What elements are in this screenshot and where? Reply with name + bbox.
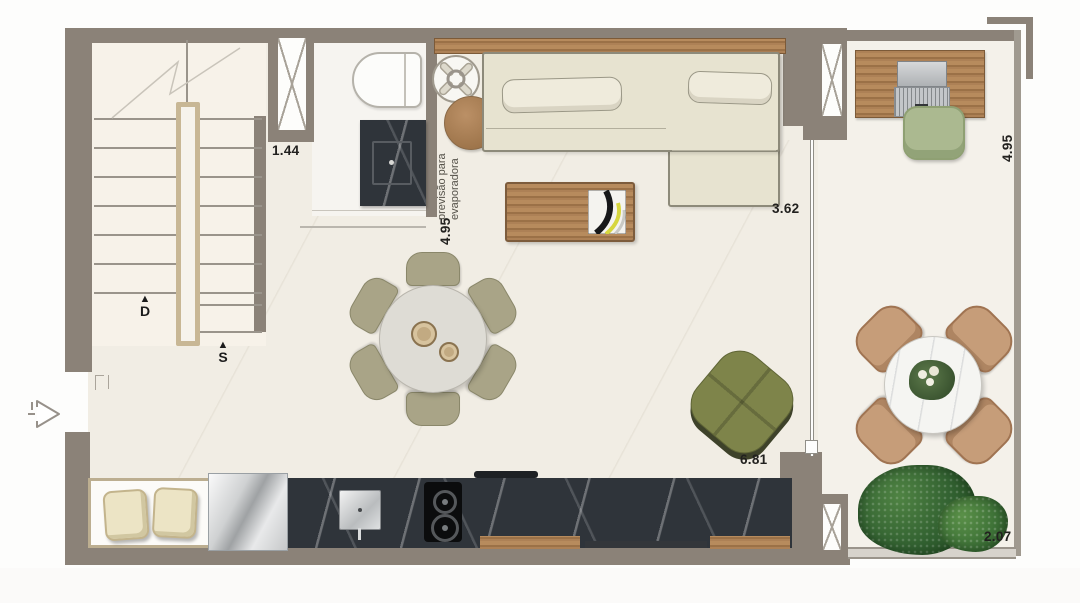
stool (152, 487, 199, 539)
vanity-faucet (389, 160, 394, 165)
kitchen-cabinet (710, 536, 790, 549)
stair-break-line (100, 42, 250, 122)
sofa-pillow (687, 71, 772, 106)
cabinet-handle (474, 471, 538, 478)
refrigerator (208, 473, 288, 551)
burner (431, 514, 459, 542)
sofa-pillow (502, 76, 623, 113)
burner (433, 490, 457, 514)
bowl (439, 342, 459, 362)
stair-down-label: ▲ D (132, 294, 158, 319)
dimension-label-kitchen: 6.81 (740, 452, 767, 467)
duct-shaft-x-icon (276, 36, 308, 132)
balcony-right-railing (1014, 30, 1021, 556)
bowl (411, 321, 437, 347)
bottom-wall (65, 548, 850, 565)
sink-drain (358, 508, 362, 512)
corner-bracket-v (1026, 17, 1033, 79)
flower-bloom (918, 370, 927, 379)
desk-chair (903, 106, 965, 160)
left-wall-upper (65, 28, 92, 372)
left-wall-lower (65, 432, 90, 565)
dining-chair (406, 252, 460, 286)
flower-bloom (926, 378, 934, 386)
laptop-screen (897, 61, 947, 87)
sofa-seam (486, 128, 666, 129)
flower-bloom (929, 366, 939, 376)
entry-arrow-icon (24, 392, 66, 436)
dimension-label-balcony-width: 2.07 (984, 529, 1011, 544)
dimension-label-bathroom: 4.95 (438, 218, 453, 245)
magazine (588, 190, 626, 234)
sink-faucet (358, 528, 361, 540)
stair-stringer (176, 102, 200, 346)
glass-partition (810, 140, 814, 456)
bathroom-door-track (312, 210, 426, 211)
kitchen-cabinet (480, 536, 580, 549)
stair-up-label: ▲ S (210, 340, 236, 365)
bathroom-door-track (300, 226, 426, 228)
balcony-top-wall (847, 30, 1016, 41)
dimension-label-balcony-depth: 4.95 (1000, 135, 1015, 162)
dimension-label-living: 3.62 (772, 201, 799, 216)
glass-partition-stop (805, 440, 818, 454)
dimension-label-hall: 1.44 (272, 143, 299, 158)
kitchen-cabinet-dark (585, 541, 707, 548)
page-margin (0, 568, 1080, 603)
chaise-seam (672, 150, 776, 151)
top-right-shaft-x-icon (820, 42, 844, 118)
bottom-right-shaft-x-icon (821, 502, 843, 552)
toilet (352, 52, 422, 108)
door-jamb-mark (95, 375, 104, 390)
toilet-tank-line (404, 54, 406, 106)
door-jamb-mark (108, 375, 115, 389)
wall-notch (783, 126, 803, 140)
dining-chair (406, 392, 460, 426)
stool (102, 489, 149, 542)
floor-plan: ▲ D ▲ S previsão para evaporadora (0, 0, 1080, 603)
